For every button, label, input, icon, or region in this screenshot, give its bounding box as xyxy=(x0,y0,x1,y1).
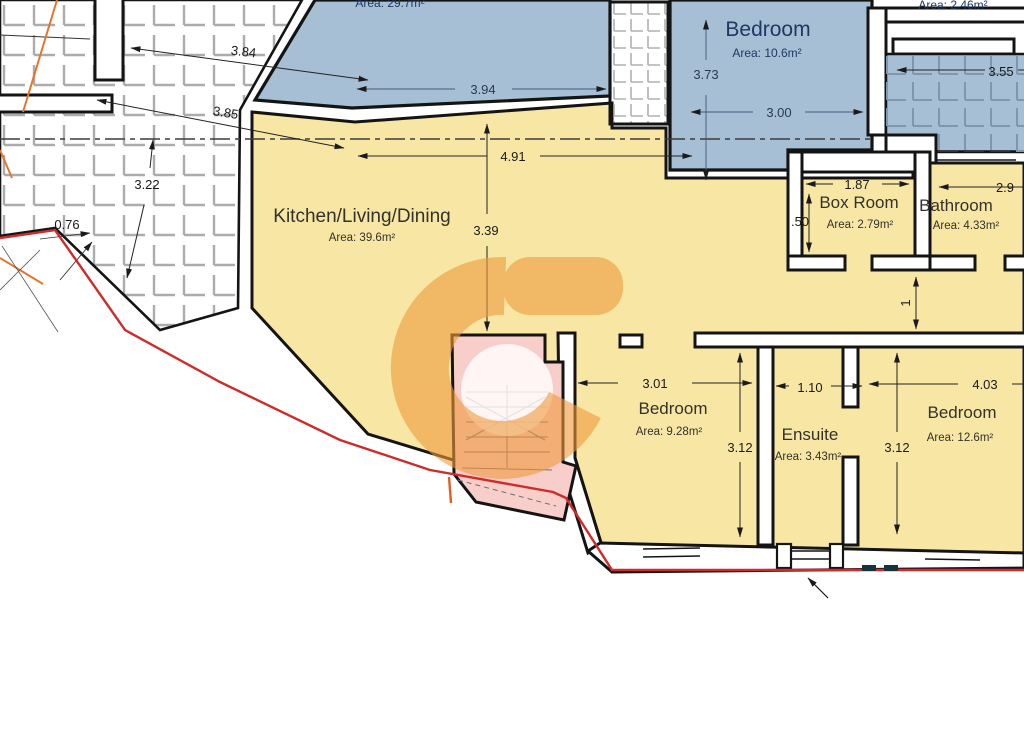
wall xyxy=(868,8,886,135)
dim-3-22: 3.22 xyxy=(134,177,159,192)
dim-1: 1 xyxy=(898,299,913,306)
dim-3-01: 3.01 xyxy=(642,376,667,391)
dim-3-12-right: 3.12 xyxy=(884,440,909,455)
dim-3-39: 3.39 xyxy=(473,223,498,238)
floor-plan-drawing: 3.84 3.85 3.94 4.91 3.73 3.00 3.22 3.39 … xyxy=(0,0,1024,731)
dim-3-00: 3.00 xyxy=(766,105,791,120)
dim-4-91: 4.91 xyxy=(500,149,525,164)
wall xyxy=(0,95,112,112)
terrace-area-label: Area: 2.46m² xyxy=(918,0,987,12)
dim-1-87: 1.87 xyxy=(844,177,869,192)
dim-3-55: 3.55 xyxy=(988,64,1013,79)
wall xyxy=(893,39,1014,54)
dim-2-9: 2.9 xyxy=(996,180,1014,195)
bedroom-2-area: Area: 12.6m² xyxy=(927,432,994,444)
dim-0-76: 0.76 xyxy=(54,217,79,232)
bedroom-top-label: Bedroom xyxy=(725,18,810,41)
dim-1-10: 1.10 xyxy=(797,380,822,395)
bedroom-1-area: Area: 9.28m² xyxy=(636,426,703,438)
dim-3-12-left: 3.12 xyxy=(727,440,752,455)
ensuite-area: Area: 3.43m² xyxy=(775,451,842,463)
bathroom-label: Bathroom xyxy=(919,196,993,215)
dim-0-50: .50 xyxy=(791,214,809,229)
floor-plan-page: 3.84 3.85 3.94 4.91 3.73 3.00 3.22 3.39 … xyxy=(0,0,1024,731)
wall xyxy=(95,0,123,80)
box-room-area: Area: 2.79m² xyxy=(827,219,894,231)
dim-4-03: 4.03 xyxy=(972,377,997,392)
dim-3-94: 3.94 xyxy=(470,82,495,97)
box-room-label: Box Room xyxy=(819,193,898,212)
lounge-area-label: Area: 29.7m² xyxy=(355,0,424,10)
kitchen-area: Area: 39.6m² xyxy=(329,232,396,244)
lounge-floor xyxy=(255,0,610,108)
ensuite-label: Ensuite xyxy=(782,425,839,444)
dim-3-73: 3.73 xyxy=(693,67,718,82)
bedroom-top-area: Area: 10.6m² xyxy=(732,46,801,60)
light-shaft xyxy=(610,2,668,124)
bathroom-area: Area: 4.33m² xyxy=(933,220,1000,232)
bedroom-1-label: Bedroom xyxy=(639,399,708,418)
dim-3-84: 3.84 xyxy=(230,43,257,61)
kitchen-label: Kitchen/Living/Dining xyxy=(273,206,450,227)
bedroom-2-label: Bedroom xyxy=(928,403,997,422)
